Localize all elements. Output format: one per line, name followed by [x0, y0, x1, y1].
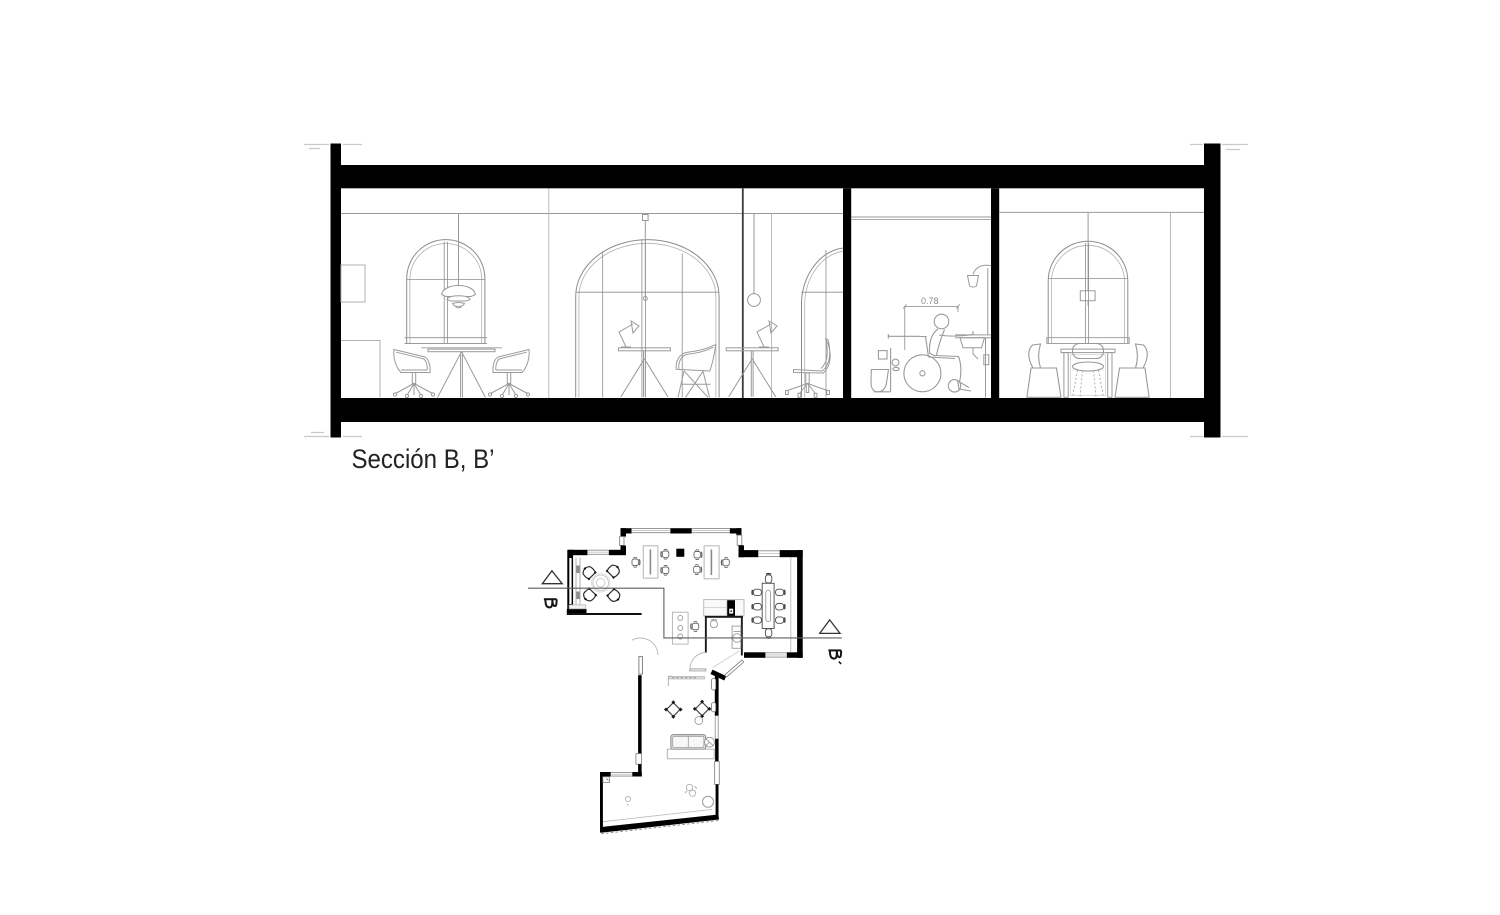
- svg-text:Sección B, B’: Sección B, B’: [352, 444, 495, 474]
- svg-text:0.78: 0.78: [921, 296, 939, 306]
